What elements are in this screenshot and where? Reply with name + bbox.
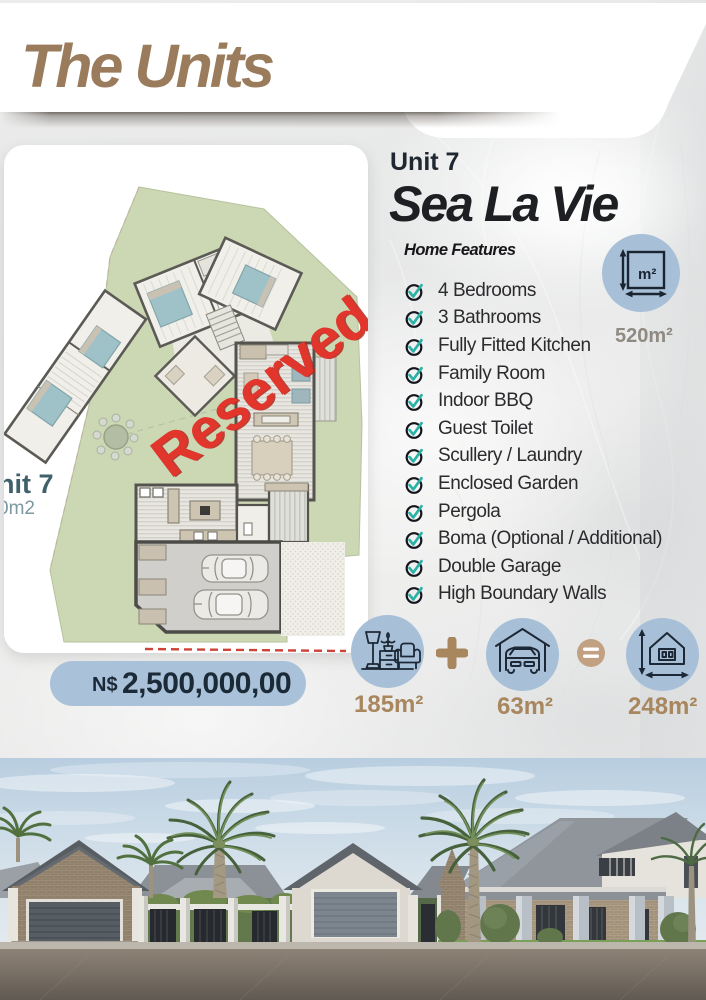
svg-text:0m2: 0m2: [4, 498, 35, 519]
svg-text:m²: m²: [638, 266, 656, 283]
svg-text:nit 7: nit 7: [4, 469, 54, 499]
